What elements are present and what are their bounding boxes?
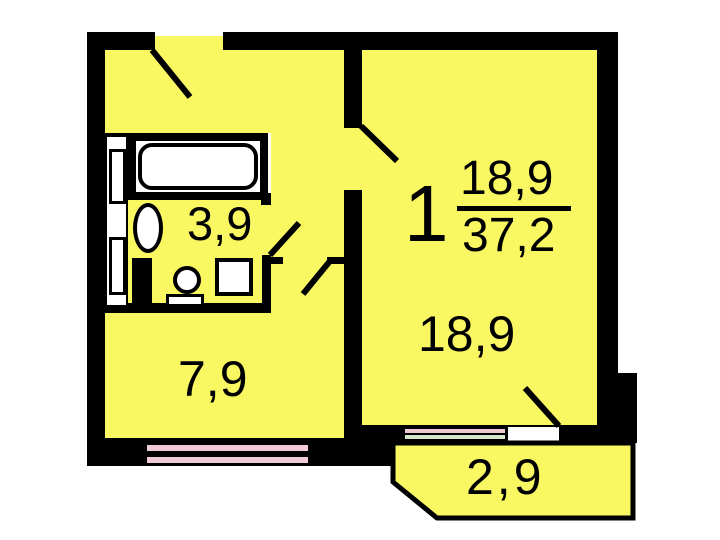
apartment-number-label: 1 — [404, 174, 449, 254]
kitchen-area-label: 7,9 — [178, 354, 248, 404]
balcony-area-label: 2,9 — [466, 452, 545, 502]
bathroom-area-label: 3,9 — [187, 200, 252, 247]
living-room-door-swing-line — [361, 126, 397, 161]
living-room-area-label: 18,9 — [418, 309, 515, 359]
floor-plan: 3,9 7,9 18,9 2,9 1 18,9 37,2 — [0, 0, 720, 540]
living-area-label: 18,9 — [460, 155, 553, 203]
bathroom-door-swing-line — [270, 223, 299, 255]
kitchen-door-swing-line — [303, 261, 330, 294]
entry-door-swing-line — [152, 50, 190, 97]
balcony-door-swing-line — [525, 388, 559, 426]
door-swings — [0, 0, 720, 540]
total-area-label: 37,2 — [462, 212, 555, 260]
